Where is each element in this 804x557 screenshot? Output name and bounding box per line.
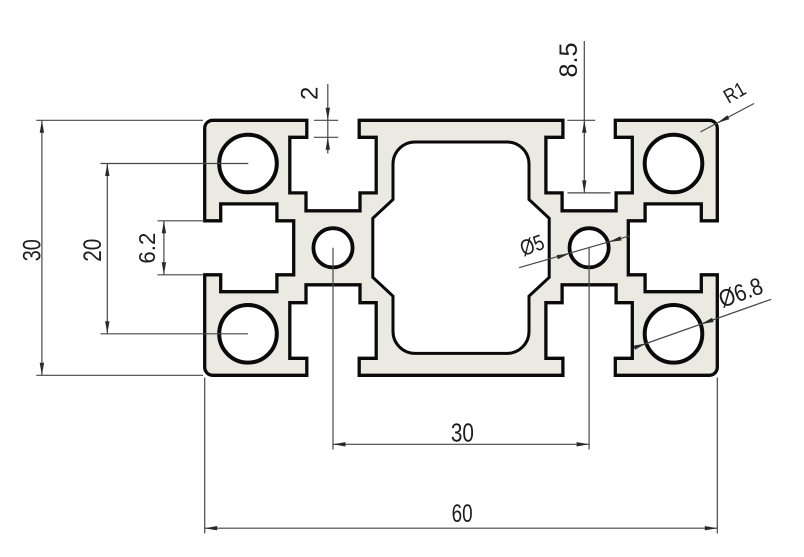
svg-text:8.5: 8.5 bbox=[555, 43, 583, 78]
svg-text:2: 2 bbox=[297, 87, 324, 100]
svg-text:30: 30 bbox=[451, 418, 474, 448]
svg-text:6.2: 6.2 bbox=[134, 233, 160, 264]
svg-text:60: 60 bbox=[452, 500, 473, 528]
svg-text:R1: R1 bbox=[720, 78, 750, 108]
svg-text:30: 30 bbox=[19, 239, 47, 261]
svg-text:Ø5: Ø5 bbox=[517, 229, 548, 261]
svg-text:Ø6.8: Ø6.8 bbox=[715, 273, 767, 314]
svg-text:20: 20 bbox=[79, 239, 107, 262]
